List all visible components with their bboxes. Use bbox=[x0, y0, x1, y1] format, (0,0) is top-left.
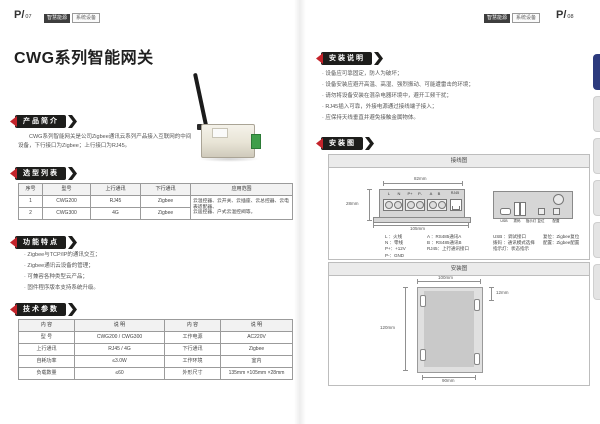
terminal-label: P+ bbox=[405, 192, 415, 196]
gateway-label-graphic bbox=[212, 128, 228, 138]
section-header-install: 安装说明 bbox=[316, 52, 383, 65]
rj45-port-graphic bbox=[450, 199, 462, 211]
ribbon-chevron-icon bbox=[374, 52, 383, 65]
cell: AC220V bbox=[221, 332, 293, 344]
table-row: 1 CWG200 RJ45 Zigbee 云温控器、云开关、云插座、云总控器、云… bbox=[19, 196, 293, 208]
header-badges-left: 智慧能源 系统设备 bbox=[44, 13, 100, 23]
badge-category: 智慧能源 bbox=[44, 14, 70, 23]
application-line-1: 云温控器、云开关、云插座、云总控器、云电表适配器、 bbox=[193, 199, 290, 211]
legend-item: P-：GND bbox=[385, 253, 406, 259]
side-index-tab bbox=[593, 264, 600, 300]
header-badges-right: 智慧能源 系统设备 bbox=[484, 13, 540, 23]
cell: Zigbee bbox=[221, 344, 293, 356]
legend-item: RJ45：上行通讯接口 bbox=[427, 246, 469, 252]
table-header-row: 内 容 说 明 内 容 说 明 bbox=[19, 320, 293, 332]
dimension-label: 105mm bbox=[409, 227, 426, 232]
mounting-slot bbox=[474, 299, 480, 311]
side-index-tab bbox=[593, 180, 600, 216]
cell: Zigbee bbox=[141, 208, 191, 220]
col-header: 下行通讯 bbox=[141, 184, 191, 196]
side-index-tab-active bbox=[593, 54, 600, 90]
cell: RJ45 bbox=[91, 196, 141, 208]
page-left: P/ 07 智慧能源 系统设备 CWG系列智能网关 产品简介 CWG系列智能网关… bbox=[0, 0, 300, 424]
selection-table: 序号 型号 上行通讯 下行通讯 应用范围 1 CWG200 RJ45 Zigbe… bbox=[18, 183, 293, 220]
screw-terminal-block bbox=[405, 199, 425, 211]
mounting-plate-inner bbox=[424, 291, 474, 367]
panel-title: 接线图 bbox=[329, 155, 589, 168]
list-item: 请勿将设备安装在混杂电器环境中，避开工频干扰； bbox=[322, 91, 474, 102]
badge-subcategory: 系统设备 bbox=[72, 13, 100, 23]
terminal-connector-graphic bbox=[251, 134, 261, 149]
port-caption: 拨码 bbox=[511, 220, 523, 224]
tech-params-table: 内 容 说 明 内 容 说 明 型 号 CWG200 / CWG300 工作电源… bbox=[18, 319, 293, 380]
ribbon-chevron-icon bbox=[68, 167, 77, 180]
dimension-label: 100mm bbox=[437, 276, 454, 281]
table-row: 自耗功率 ≤3.0W 工作环境 室内 bbox=[19, 356, 293, 368]
section-heading-text: 安装说明 bbox=[321, 52, 372, 65]
application-cell: 云温控器、云开关、云插座、云总控器、云电表适配器、 云遥控器、户式云温控阀等。 bbox=[191, 196, 293, 220]
page-number-value: 08 bbox=[567, 14, 573, 20]
list-item: RJ45插入可靠，外接电源通过接线端子接入； bbox=[322, 102, 474, 113]
section-header-tech: 技术参数 bbox=[10, 303, 77, 316]
dimension-line-top bbox=[383, 183, 463, 184]
mounting-slot bbox=[474, 353, 480, 365]
legend-item: 配置：Zigbee配置 bbox=[543, 240, 579, 246]
product-photo bbox=[170, 65, 290, 165]
section-heading-text: 功能特点 bbox=[15, 236, 66, 249]
terminal-label: L bbox=[385, 192, 393, 196]
dip-switch-graphic bbox=[520, 202, 526, 216]
dimension-line-right bbox=[491, 287, 492, 301]
antenna-graphic bbox=[193, 73, 208, 130]
col-header: 上行通讯 bbox=[91, 184, 141, 196]
side-index-tab bbox=[593, 222, 600, 258]
ribbon-chevron-icon bbox=[68, 115, 77, 128]
cell: 2 bbox=[19, 208, 43, 220]
ribbon-chevron-icon bbox=[365, 137, 374, 150]
list-item: Zigbee与TCP/IP的通讯交互； bbox=[24, 250, 100, 261]
col-header: 序号 bbox=[19, 184, 43, 196]
screw-terminal-block bbox=[427, 199, 447, 211]
screw-terminal-block bbox=[383, 199, 403, 211]
cell: Zigbee bbox=[141, 196, 191, 208]
dimension-line-left bbox=[369, 189, 370, 221]
cell: 外形尺寸 bbox=[165, 368, 221, 380]
cell: 自耗功率 bbox=[19, 356, 75, 368]
cell: 1 bbox=[19, 196, 43, 208]
cell: CWG300 bbox=[43, 208, 91, 220]
port-caption: 配置 bbox=[550, 220, 562, 224]
catalog-spread: P/ 07 智慧能源 系统设备 CWG系列智能网关 产品简介 CWG系列智能网关… bbox=[0, 0, 600, 424]
side-index-tab bbox=[593, 138, 600, 174]
legend-item: 指示灯：状态指示 bbox=[493, 246, 535, 252]
ribbon-arrow-icon bbox=[316, 138, 323, 149]
cell: 4G bbox=[91, 208, 141, 220]
page-number-prefix: P/ bbox=[556, 10, 566, 20]
dimension-label: 82mm bbox=[413, 177, 428, 182]
panel-title: 安装图 bbox=[329, 263, 589, 276]
cell: 室内 bbox=[221, 356, 293, 368]
badge-subcategory: 系统设备 bbox=[512, 13, 540, 23]
ribbon-chevron-icon bbox=[68, 303, 77, 316]
cell: RJ45 / 4G bbox=[75, 344, 165, 356]
section-header-features: 功能特点 bbox=[10, 236, 77, 249]
table-row: 型 号 CWG200 / CWG300 工作电源 AC220V bbox=[19, 332, 293, 344]
table-row: 上行通讯 RJ45 / 4G 下行通讯 Zigbee bbox=[19, 344, 293, 356]
reset-button-graphic bbox=[538, 208, 545, 215]
page-number-right: P/ 08 bbox=[556, 10, 574, 20]
feature-list: Zigbee与TCP/IP的通讯交互； Zigbee通讯云设备的管理； 可兼容各… bbox=[24, 250, 100, 294]
application-line-2: 云遥控器、户式云温控阀等。 bbox=[193, 210, 290, 216]
intro-line-1: CWG系列智能网关是公司Zigbee通讯云系列产品接入互联网的中间 bbox=[18, 133, 191, 142]
section-header-selection: 选型列表 bbox=[10, 167, 77, 180]
ribbon-chevron-icon bbox=[68, 236, 77, 249]
legend-item: P+：+12V bbox=[385, 246, 406, 252]
ribbon-arrow-icon bbox=[10, 116, 17, 127]
intro-line-2: 设备，下行接口为Zigbee；上行接口为RJ45。 bbox=[18, 142, 191, 151]
table-row: 负载数量 ≤60 外形尺寸 135mm ×105mm ×28mm bbox=[19, 368, 293, 380]
port-label: RJ45 bbox=[447, 192, 463, 196]
col-header: 说 明 bbox=[221, 320, 293, 332]
cell: 型 号 bbox=[19, 332, 75, 344]
wiring-legend-right: A ：RS485通讯A B ：RS485通讯B RJ45：上行通讯接口 bbox=[427, 234, 469, 253]
dimension-label: 120mm bbox=[379, 326, 396, 331]
port-caption: 复位 bbox=[535, 220, 547, 224]
badge-category: 智慧能源 bbox=[484, 14, 510, 23]
cell: ≤60 bbox=[75, 368, 165, 380]
side-index-tab bbox=[593, 96, 600, 132]
section-header-intro: 产品简介 bbox=[10, 115, 77, 128]
table-header-row: 序号 型号 上行通讯 下行通讯 应用范围 bbox=[19, 184, 293, 196]
list-item: 设备应可靠固定，防人为破坏； bbox=[322, 69, 474, 80]
list-item: 设备安装应避开高温、高湿、强烈振动、可能遭雷击的环境； bbox=[322, 80, 474, 91]
list-item: 固件程序版本支持系统升级。 bbox=[24, 283, 100, 294]
port-caption: USB bbox=[497, 220, 511, 224]
mounting-slot bbox=[420, 295, 426, 307]
section-header-diagram: 安装图 bbox=[316, 137, 374, 150]
cell: 下行通讯 bbox=[165, 344, 221, 356]
dimension-label: 12mm bbox=[495, 291, 510, 296]
terminal-label: A bbox=[427, 192, 435, 196]
page-number-prefix: P/ bbox=[14, 10, 24, 20]
page-right: 智慧能源 系统设备 P/ 08 安装说明 设备应可靠固定，防人为破坏； 设备安装… bbox=[300, 0, 600, 424]
mounting-diagram-panel: 安装图 100mm 12mm 120mm 90mm bbox=[328, 262, 590, 386]
ribbon-arrow-icon bbox=[10, 168, 17, 179]
cell: 上行通讯 bbox=[19, 344, 75, 356]
mounting-slot bbox=[420, 349, 426, 361]
section-heading-text: 技术参数 bbox=[15, 303, 66, 316]
cell: CWG200 bbox=[43, 196, 91, 208]
wiring-legend-left: L ：火线 N ：零线 P+：+12V P-：GND bbox=[385, 234, 406, 259]
dimension-line-left bbox=[405, 287, 406, 371]
terminal-label: B bbox=[435, 192, 443, 196]
page-number-value: 07 bbox=[25, 14, 31, 20]
intro-paragraph: CWG系列智能网关是公司Zigbee通讯云系列产品接入互联网的中间 设备，下行接… bbox=[18, 133, 191, 150]
list-item: 应保持天线垂直并避免接触金属物体。 bbox=[322, 113, 474, 124]
cell: ≤3.0W bbox=[75, 356, 165, 368]
list-item: Zigbee通讯云设备的管理； bbox=[24, 261, 100, 272]
wiring-diagram-panel: 接线图 L N P+ P- A B RJ45 82mm 28mm 105mm L… bbox=[328, 154, 590, 260]
cell: 工作电源 bbox=[165, 332, 221, 344]
install-notes-list: 设备应可靠固定，防人为破坏； 设备安装应避开高温、高湿、强烈振动、可能遭雷击的环… bbox=[322, 69, 474, 124]
terminal-label: P- bbox=[415, 192, 425, 196]
col-header: 说 明 bbox=[75, 320, 165, 332]
ports-legend-left: USB ：调试接口 拨码 ：通讯模式选择 指示灯：状态指示 bbox=[493, 234, 535, 253]
col-header: 应用范围 bbox=[191, 184, 293, 196]
ribbon-arrow-icon bbox=[316, 53, 323, 64]
dimension-label: 28mm bbox=[345, 202, 360, 207]
cell: 负载数量 bbox=[19, 368, 75, 380]
page-title: CWG系列智能网关 bbox=[14, 44, 154, 68]
section-heading-text: 安装图 bbox=[321, 137, 363, 150]
dimension-line-top bbox=[417, 281, 481, 282]
cell: 135mm ×105mm ×28mm bbox=[221, 368, 293, 380]
section-heading-text: 产品简介 bbox=[15, 115, 66, 128]
page-number-left: P/ 07 bbox=[14, 10, 32, 20]
ribbon-arrow-icon bbox=[10, 304, 17, 315]
gateway-flange-drawing bbox=[373, 217, 471, 223]
ports-legend-right: 复位：Zigbee复位 配置：Zigbee配置 bbox=[543, 234, 579, 246]
col-header: 内 容 bbox=[165, 320, 221, 332]
cell: CWG200 / CWG300 bbox=[75, 332, 165, 344]
antenna-mount-hole bbox=[553, 194, 564, 205]
list-item: 可兼容各种类型云产品； bbox=[24, 272, 100, 283]
col-header: 内 容 bbox=[19, 320, 75, 332]
ribbon-arrow-icon bbox=[10, 237, 17, 248]
usb-port-graphic bbox=[500, 208, 511, 215]
cell: 工作环境 bbox=[165, 356, 221, 368]
section-heading-text: 选型列表 bbox=[15, 167, 66, 180]
config-button-graphic bbox=[553, 208, 560, 215]
dimension-label: 90mm bbox=[441, 379, 456, 384]
col-header: 型号 bbox=[43, 184, 91, 196]
terminal-label: N bbox=[395, 192, 403, 196]
gateway-body-graphic bbox=[201, 124, 255, 158]
